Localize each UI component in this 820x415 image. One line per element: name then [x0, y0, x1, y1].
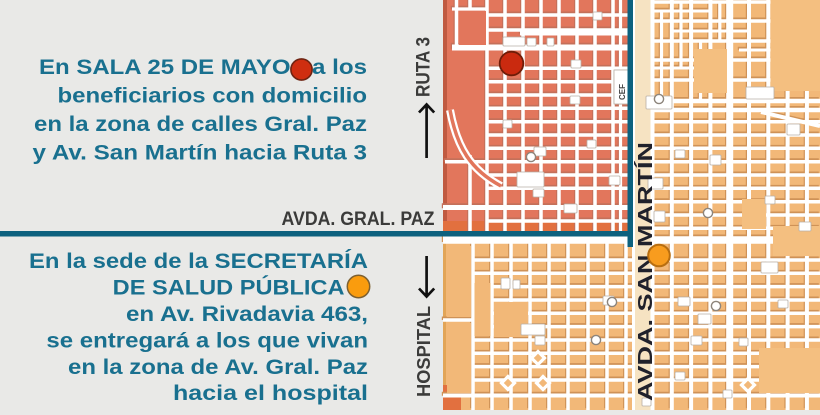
svg-text:RUTA 3: RUTA 3 [414, 37, 435, 97]
svg-text:se entregará a los que vivan: se entregará a los que vivan [46, 329, 368, 353]
svg-text:en Av. Rivadavia 463,: en Av. Rivadavia 463, [126, 302, 368, 326]
svg-text:a los: a los [312, 55, 367, 79]
svg-text:AVDA. GRAL. PAZ: AVDA. GRAL. PAZ [282, 209, 435, 230]
svg-text:beneficiarios con domicilio: beneficiarios con domicilio [58, 84, 368, 108]
svg-text:en la zona de calles Gral. Paz: en la zona de calles Gral. Paz [34, 112, 367, 136]
svg-text:y Av. San Martín hacia Ruta 3: y Av. San Martín hacia Ruta 3 [33, 141, 368, 165]
svg-text:DE SALUD PÚBLICA: DE SALUD PÚBLICA [113, 275, 345, 300]
svg-text:En la sede de la SECRETARÍA: En la sede de la SECRETARÍA [29, 248, 368, 273]
svg-text:AVDA. SAN MARTÍN: AVDA. SAN MARTÍN [634, 142, 657, 401]
svg-text:HOSPITAL: HOSPITAL [414, 306, 434, 397]
svg-text:CEF: CEF [618, 84, 627, 100]
svg-text:hacia el hospital: hacia el hospital [173, 381, 368, 405]
svg-text:en la zona de Av. Gral. Paz: en la zona de Av. Gral. Paz [68, 355, 368, 379]
svg-text:En SALA 25 DE MAYO: En SALA 25 DE MAYO [39, 55, 291, 79]
